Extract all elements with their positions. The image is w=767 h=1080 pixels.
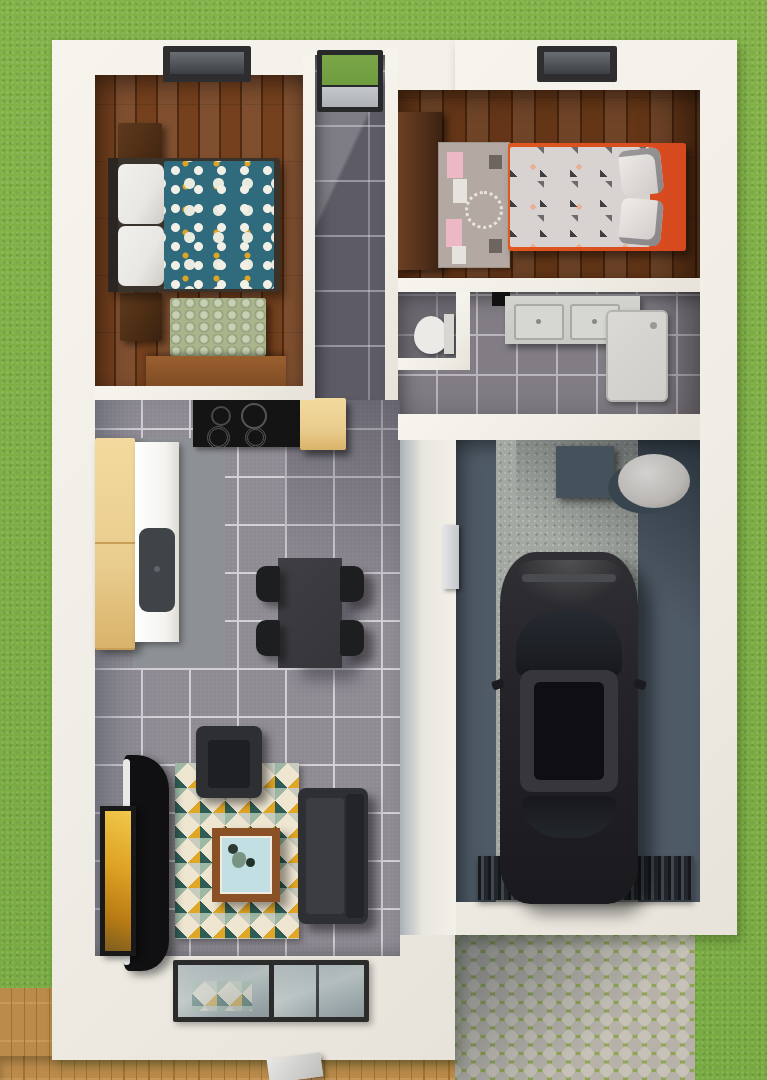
sliding-door-pane-right xyxy=(274,965,364,1017)
coffee-table xyxy=(212,828,280,902)
kids-window-glass xyxy=(544,52,610,74)
sliding-door-pane-left xyxy=(178,965,269,1017)
kitchen-sink-drain xyxy=(154,566,160,572)
rug-swirl xyxy=(465,191,503,229)
burner-4 xyxy=(245,427,266,448)
kids-window xyxy=(537,46,617,82)
kitchen-cabinet-tall xyxy=(95,438,135,650)
kitchen-counter xyxy=(135,442,179,642)
table-decor-plant xyxy=(232,852,246,868)
entry-door xyxy=(317,50,383,112)
rug-card-pink-1 xyxy=(447,152,463,178)
floor-plan-scene xyxy=(0,0,767,1080)
wall-living-garage xyxy=(400,440,456,935)
sofa-seat xyxy=(306,798,344,914)
rug-card-white-2 xyxy=(452,246,466,264)
bed-duvet-floral xyxy=(164,161,274,289)
kids-wardrobe xyxy=(398,112,442,270)
wall-wc-right xyxy=(456,292,470,364)
wall-bedroom-hall xyxy=(303,55,315,400)
car-mirror-left xyxy=(491,678,505,690)
water-heater-box xyxy=(556,446,614,498)
kitchen-cabinet-corner xyxy=(300,398,346,450)
kids-play-rug xyxy=(438,142,510,268)
dining-chair-1 xyxy=(256,566,280,602)
car-rear-glass xyxy=(522,796,616,838)
kids-bed xyxy=(508,143,686,251)
boiler-tank xyxy=(618,454,690,508)
armchair xyxy=(196,726,262,798)
shower-tray xyxy=(606,310,668,402)
rug-motif-dark-2 xyxy=(489,239,502,253)
wall-hall-kids xyxy=(385,48,398,400)
burner-2 xyxy=(241,403,267,429)
wall-art-frame xyxy=(100,806,136,956)
toilet-tank xyxy=(444,314,454,354)
wall-kids-bath xyxy=(398,278,700,292)
driveway-cobblestone xyxy=(455,935,695,1080)
garage xyxy=(456,440,700,902)
bedroom-bench xyxy=(170,298,266,356)
wall-wc-bottom xyxy=(398,358,470,370)
dining-chair-4 xyxy=(340,620,364,656)
kids-pillow-top xyxy=(618,147,665,197)
burner-3 xyxy=(207,426,230,449)
driveway-shadow xyxy=(455,935,695,1080)
entry-door-glass-lower xyxy=(322,87,378,107)
sink-drain-right xyxy=(592,319,597,324)
sliding-glass-door xyxy=(173,960,369,1022)
car-mirror-right xyxy=(633,678,647,690)
toilet xyxy=(414,316,448,354)
nightstand-bottom xyxy=(120,293,162,341)
car-hood-highlight xyxy=(512,560,626,608)
dining-chair-3 xyxy=(340,566,364,602)
rug-card-white-1 xyxy=(453,179,467,203)
bed-master xyxy=(108,158,280,292)
bedroom-window xyxy=(163,46,251,82)
car-windshield xyxy=(516,610,622,676)
garage-side-door xyxy=(443,525,459,589)
sliding-door-glare-2 xyxy=(274,965,364,1017)
kids-pillow-bottom xyxy=(618,197,664,246)
bedroom-dresser xyxy=(146,356,286,390)
bedroom-window-glass xyxy=(170,52,244,74)
bed-pillow-bottom xyxy=(118,226,164,286)
kids-bedroom xyxy=(398,90,700,278)
car xyxy=(500,552,638,904)
shower-drain xyxy=(650,322,657,329)
rug-card-pink-2 xyxy=(446,219,462,247)
wall-bath-garage xyxy=(398,414,700,440)
bed-pillow-top xyxy=(118,164,164,224)
sofa-back xyxy=(346,794,364,918)
entry-door-glass-grass xyxy=(322,55,378,85)
bathroom xyxy=(398,292,700,414)
armchair-seat xyxy=(208,740,250,788)
kitchen-sink xyxy=(139,528,175,612)
kitchen-living-area xyxy=(95,400,400,956)
dining-table xyxy=(278,558,342,668)
sliding-door-glare xyxy=(178,965,269,1017)
bed-headboard xyxy=(108,158,118,292)
cooktop xyxy=(193,400,300,447)
rug-motif-dark-1 xyxy=(489,155,502,169)
wall-kitchen-top xyxy=(95,386,303,400)
table-decor-bowl xyxy=(246,858,255,867)
sofa xyxy=(298,788,368,924)
car-sunroof xyxy=(534,682,604,780)
burner-1 xyxy=(211,406,231,426)
dining-chair-2 xyxy=(256,620,280,656)
car-roofrack xyxy=(522,574,616,582)
master-bedroom xyxy=(95,75,303,390)
sink-basin-left xyxy=(514,304,564,340)
sink-drain-left xyxy=(536,319,541,324)
cabinet-seam xyxy=(95,542,135,544)
